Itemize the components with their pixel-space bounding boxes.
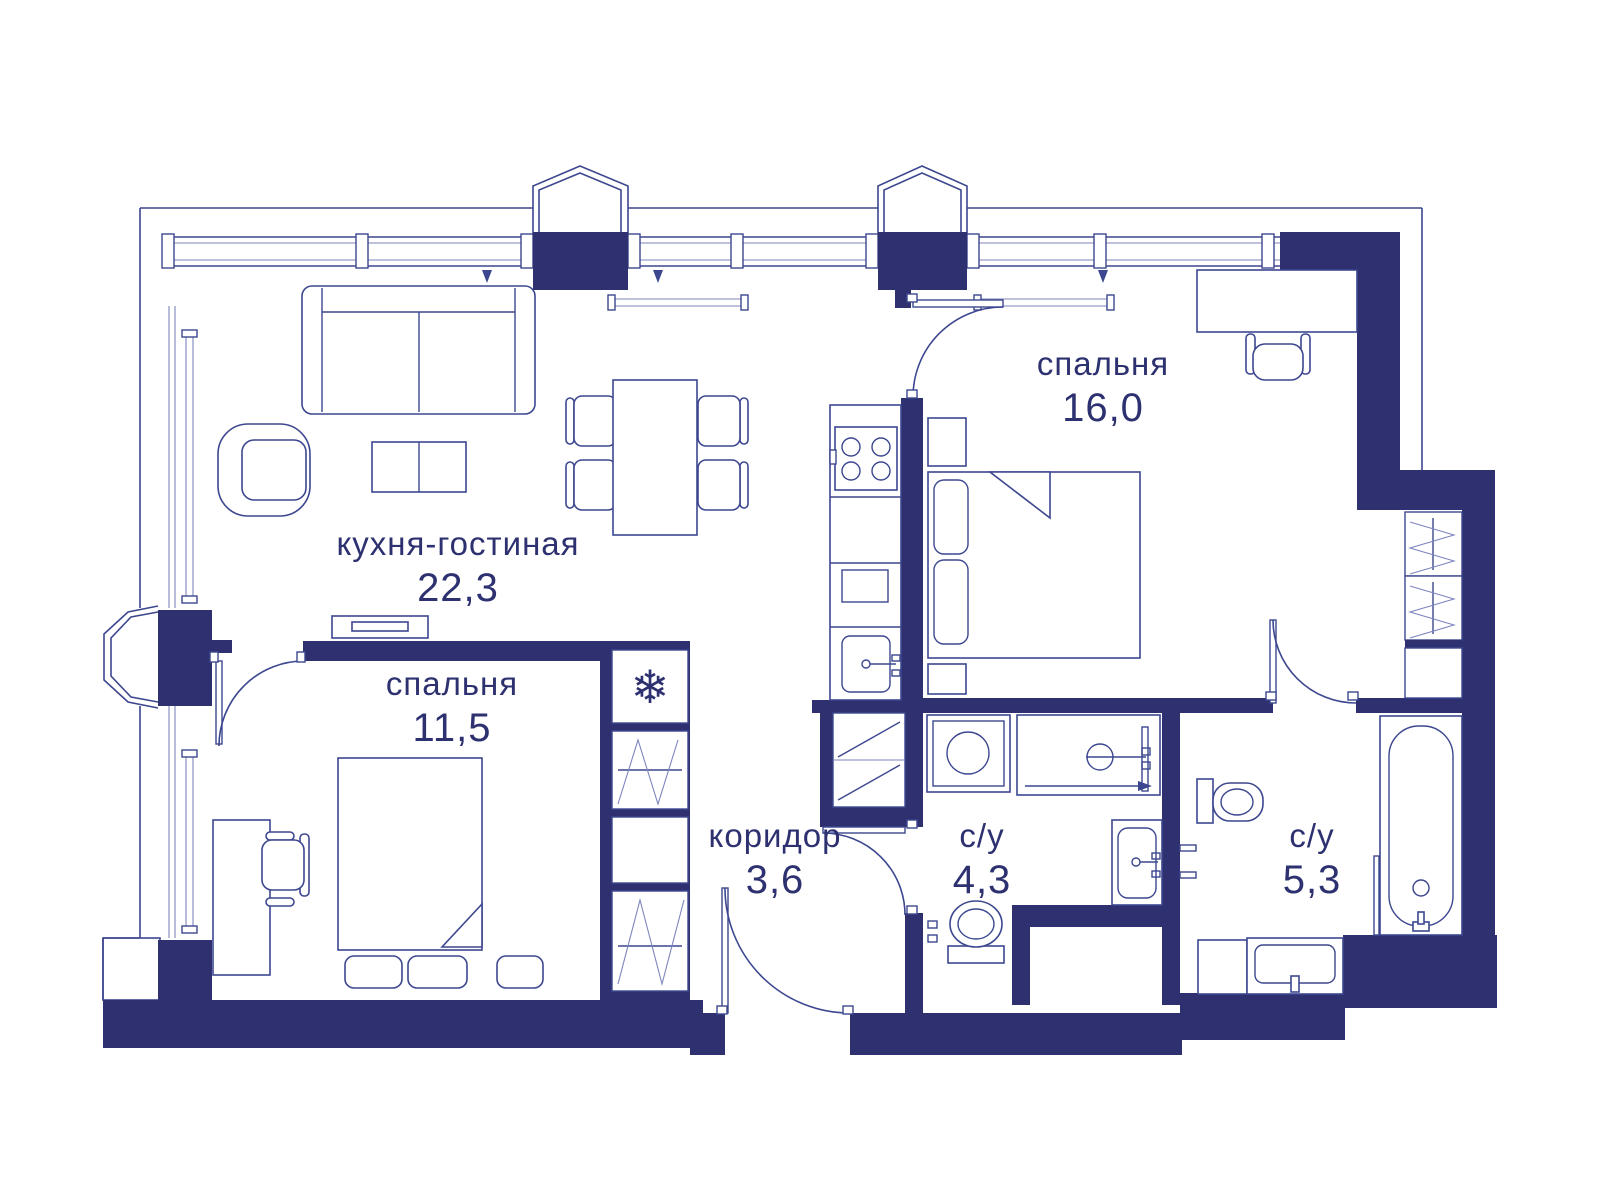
room-name: с/у bbox=[1283, 816, 1342, 856]
room-name: спальня bbox=[1037, 344, 1169, 384]
bed bbox=[338, 758, 482, 950]
room-label-bedroom-small: спальня 11,5 bbox=[386, 664, 518, 752]
room-name: с/у bbox=[953, 816, 1012, 856]
shower bbox=[1017, 715, 1160, 795]
room-area: 22,3 bbox=[336, 564, 579, 612]
floor-plan: ❄ bbox=[0, 0, 1600, 1200]
toilet bbox=[1197, 779, 1263, 823]
room-name: коридор bbox=[709, 816, 842, 856]
room-label-bedroom-large: спальня 16,0 bbox=[1037, 344, 1169, 432]
room-name: кухня-гостиная bbox=[336, 524, 579, 564]
room-area: 11,5 bbox=[386, 704, 518, 752]
tv-console bbox=[332, 616, 428, 638]
bedroom-large-wardrobe bbox=[1405, 512, 1462, 698]
desk-chair bbox=[1246, 334, 1310, 380]
sofa bbox=[302, 286, 535, 414]
stove bbox=[835, 427, 897, 490]
bathtub bbox=[1374, 716, 1462, 935]
towel-bar bbox=[1180, 872, 1196, 878]
bedroom-small-furniture bbox=[213, 758, 543, 988]
desk bbox=[1197, 270, 1357, 332]
nightstand bbox=[928, 664, 966, 694]
corridor-closet bbox=[833, 713, 905, 807]
kitchen-counter bbox=[830, 405, 901, 700]
vanity-sink bbox=[1198, 938, 1343, 994]
armchair bbox=[218, 424, 310, 516]
room-area: 3,6 bbox=[709, 856, 842, 904]
bathroom-large-door-leaf bbox=[1270, 620, 1276, 703]
room-label-corridor: коридор 3,6 bbox=[709, 816, 842, 904]
coffee-table bbox=[372, 442, 466, 492]
fridge-snowflake-icon: ❄ bbox=[631, 660, 670, 714]
bedroom-small-door-leaf bbox=[216, 661, 222, 744]
floor-plan-drawing: ❄ bbox=[0, 0, 1600, 1200]
glass-screen bbox=[1374, 856, 1379, 935]
room-area: 4,3 bbox=[953, 856, 1012, 904]
dining-table bbox=[613, 380, 697, 535]
towel-bar bbox=[1180, 845, 1196, 851]
room-name: спальня bbox=[386, 664, 518, 704]
toilet bbox=[928, 901, 1004, 963]
bedroom-large-furniture bbox=[928, 270, 1357, 694]
bathroom-sink bbox=[1112, 820, 1162, 905]
storage-column: ❄ bbox=[612, 650, 688, 991]
dining-set bbox=[566, 380, 748, 535]
desk bbox=[213, 820, 270, 975]
room-label-bathroom-small: с/у 4,3 bbox=[953, 816, 1012, 904]
bedroom-large-door-leaf bbox=[913, 300, 1003, 307]
room-label-bathroom-large: с/у 5,3 bbox=[1283, 816, 1342, 904]
room-label-kitchen-living: кухня-гостиная 22,3 bbox=[336, 524, 579, 612]
washing-machine bbox=[927, 715, 1010, 792]
room-area: 5,3 bbox=[1283, 856, 1342, 904]
nightstand bbox=[928, 418, 966, 466]
room-area: 16,0 bbox=[1037, 384, 1169, 432]
